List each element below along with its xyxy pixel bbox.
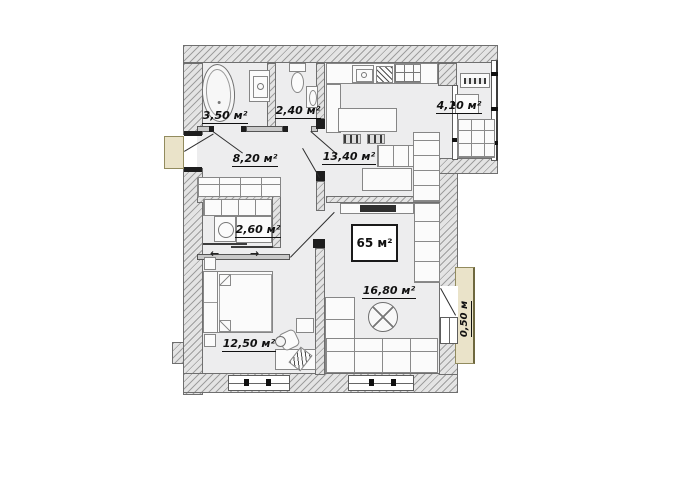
total-area-box: 65 м² — [351, 224, 398, 262]
window — [348, 375, 414, 391]
loggia-shelf-detail — [464, 78, 486, 84]
wall-bath-bottom-mid — [246, 126, 283, 132]
wardrobe-shelves — [203, 199, 272, 216]
room-label-text: 16,80 м² — [362, 284, 416, 299]
entrance-door — [164, 136, 184, 169]
floor-plan: ← → 65 м² 3,50 м² 2,40 м² 4,10 м² 8,20 м… — [0, 0, 700, 481]
wall-step-under-loggia — [439, 158, 498, 174]
window — [228, 375, 290, 391]
wall-cap — [184, 167, 202, 172]
nightstand — [204, 334, 216, 347]
wall-spine-mid — [316, 181, 325, 211]
room-label-wc: 2,40 м² — [270, 103, 326, 119]
kitchen-stool — [343, 134, 361, 144]
dining-table — [362, 168, 412, 191]
kitchen-sink — [352, 65, 374, 83]
wall-left-step — [172, 342, 184, 364]
bed — [203, 271, 273, 333]
room-label-text: 12,50 м² — [222, 337, 276, 352]
room-label-text: 2,60 м² — [235, 223, 282, 238]
room-label-hallway: 8,20 м² — [224, 151, 286, 168]
bed-headboard — [204, 272, 218, 332]
room-label-living: 16,80 м² — [357, 283, 421, 299]
round-table-cross — [369, 303, 397, 331]
room-label-text: 0,50 м — [459, 301, 472, 337]
room-label-balcony: 0,50 м — [442, 298, 488, 340]
kitchen-sink-tap — [361, 72, 367, 78]
wall-cap — [184, 131, 202, 136]
glazing-tick — [491, 72, 498, 76]
toilet-bowl — [291, 72, 304, 93]
wall-stub-kitchen-loggia — [438, 63, 457, 86]
bed-pillow — [219, 320, 231, 332]
room-label-wardrobe: 2,60 м² — [230, 222, 286, 238]
window-tick — [369, 379, 374, 386]
room-label-text: 4,10 м² — [436, 99, 483, 114]
wall-bottom — [183, 373, 458, 393]
door-hinge — [313, 239, 325, 248]
toilet-tank — [289, 63, 306, 72]
desk-return — [296, 318, 314, 333]
room-label-bedroom: 12,50 м² — [217, 336, 281, 352]
wall-top — [183, 45, 498, 63]
sofa-bottom — [325, 338, 438, 373]
room-label-text: 13,40 м² — [322, 150, 376, 165]
room-label-kitchen: 13,40 м² — [317, 149, 381, 166]
nightstand — [204, 257, 216, 270]
kitchen-stool — [367, 134, 385, 144]
glazing-tick — [491, 107, 498, 111]
kitchen-island — [338, 108, 397, 132]
tv — [360, 205, 396, 212]
hall-closet — [197, 177, 281, 197]
bath-washbasin-tap — [257, 83, 264, 90]
window-tick — [266, 379, 271, 386]
sliding-arrow-right: → — [250, 248, 259, 259]
loggia-shelf — [460, 73, 490, 88]
room-label-loggia: 4,10 м² — [432, 98, 486, 114]
loggia-sofa — [457, 119, 495, 158]
kitchen-drainboard — [376, 66, 393, 83]
wall-left-upper — [183, 63, 203, 135]
living-wardrobe — [414, 203, 440, 283]
bed-pillow — [219, 274, 231, 286]
room-label-text: 2,40 м² — [275, 104, 322, 119]
round-table — [368, 302, 398, 332]
bath-washbasin — [249, 70, 270, 102]
wall-cap — [283, 126, 288, 132]
room-label-text: 8,20 м² — [232, 152, 279, 167]
door-hinge — [316, 119, 325, 129]
sliding-door-line — [203, 243, 247, 245]
window-tick — [391, 379, 396, 386]
window-tick — [244, 379, 249, 386]
dining-sofa-right — [413, 132, 440, 202]
wall-spine-lower — [315, 248, 325, 375]
room-label-bathroom: 3,50 м² — [196, 108, 254, 124]
wall-cap — [241, 126, 246, 132]
room-label-text: 3,50 м² — [202, 109, 249, 124]
kitchen-stove — [394, 64, 421, 83]
